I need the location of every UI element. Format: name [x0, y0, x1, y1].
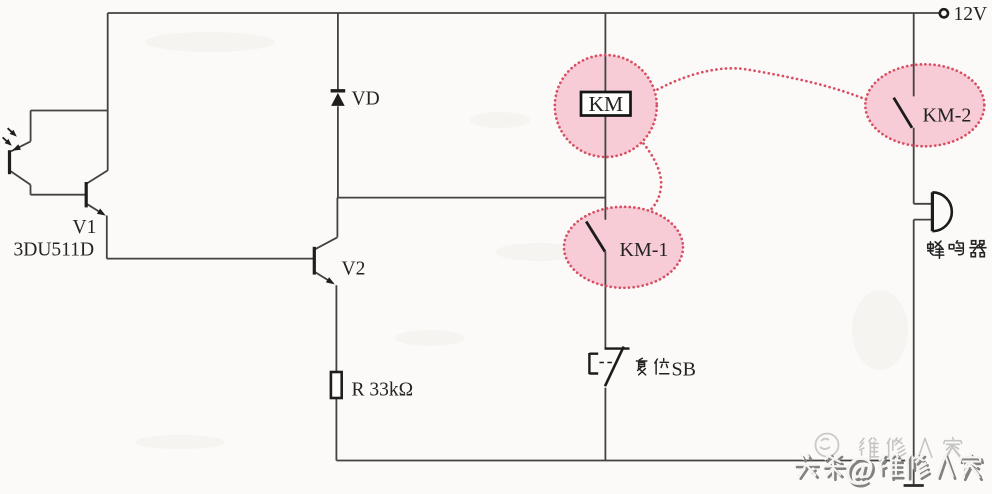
- svg-text:R 33kΩ: R 33kΩ: [352, 380, 414, 401]
- svg-text:12V: 12V: [954, 4, 988, 25]
- svg-text:V2: V2: [342, 259, 366, 280]
- svg-text:@: @: [845, 450, 874, 485]
- svg-text:KM-1: KM-1: [620, 239, 669, 261]
- svg-text:3DU511D: 3DU511D: [14, 240, 95, 261]
- svg-text:KM-2: KM-2: [923, 105, 972, 127]
- svg-text:KM: KM: [589, 92, 624, 116]
- svg-text:SB: SB: [672, 359, 696, 381]
- svg-text:V1: V1: [73, 217, 97, 238]
- svg-text:VD: VD: [352, 89, 380, 110]
